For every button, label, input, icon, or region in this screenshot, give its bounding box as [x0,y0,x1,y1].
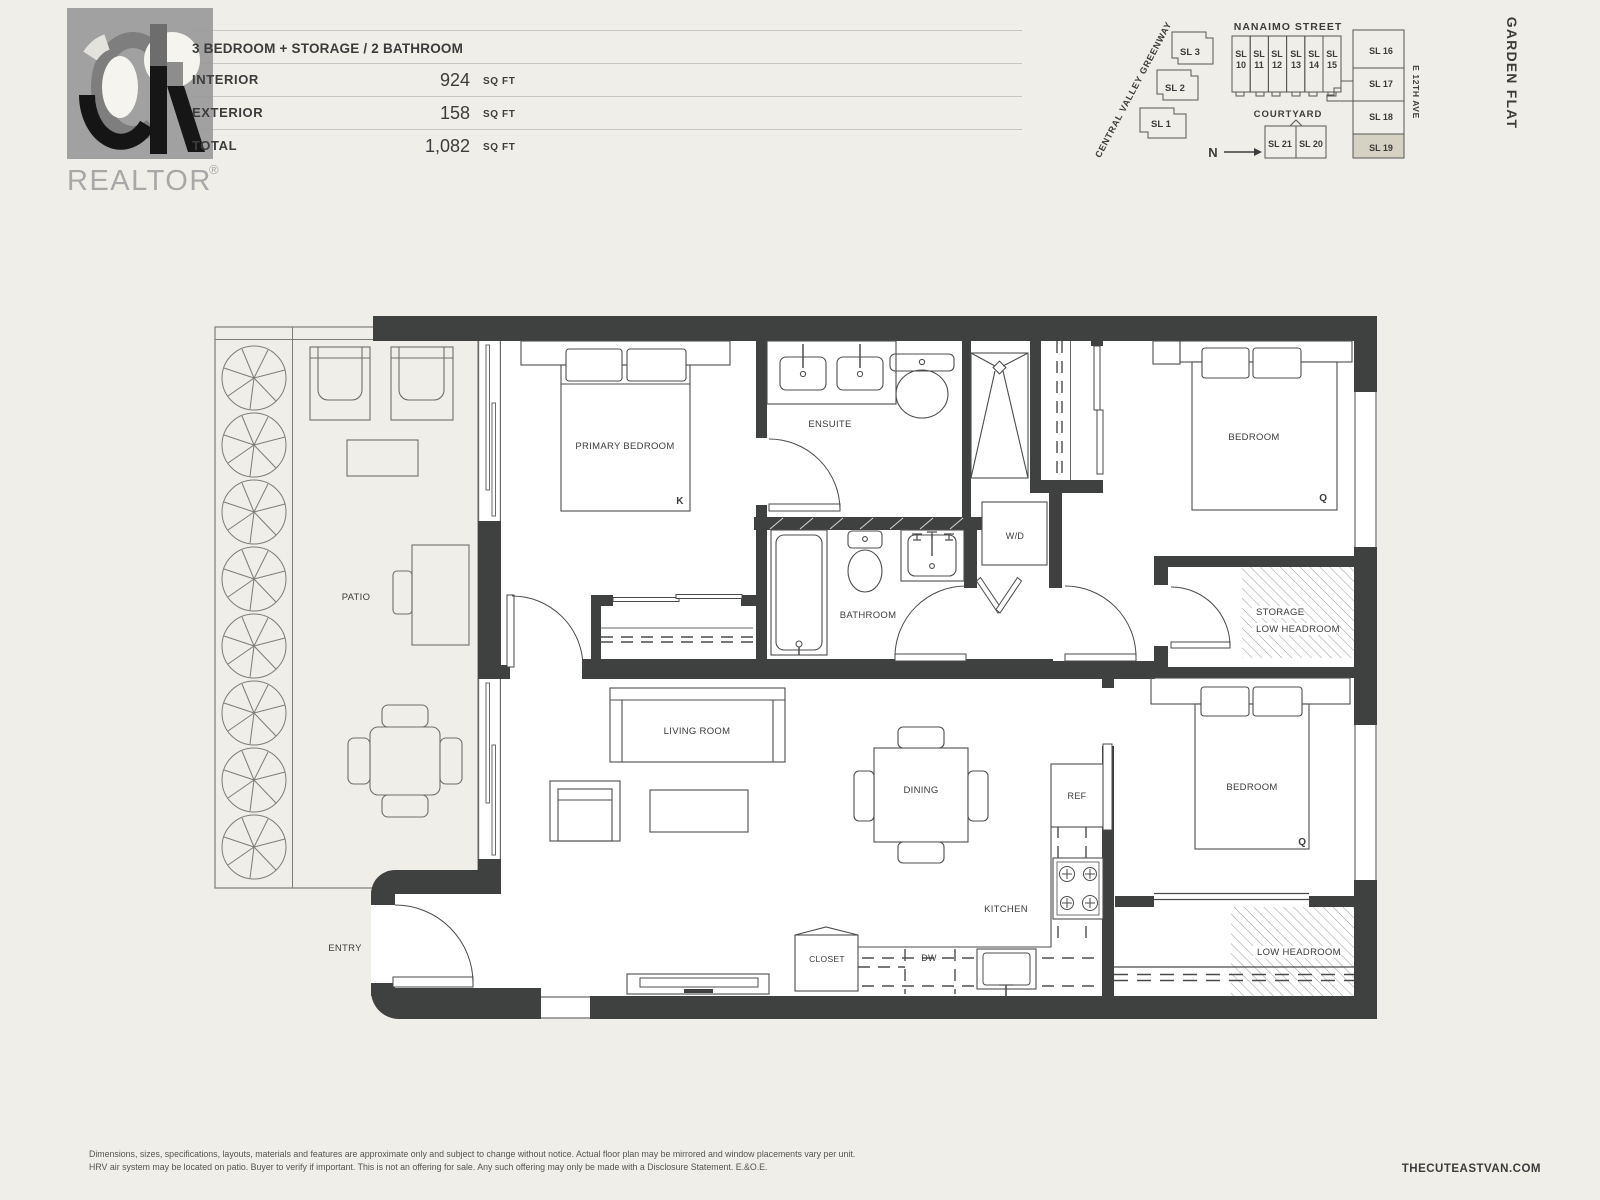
svg-text:REF: REF [1068,791,1087,801]
svg-text:BEDROOM: BEDROOM [1228,432,1279,443]
svg-text:SQ FT: SQ FT [483,76,515,87]
svg-text:TOTAL: TOTAL [192,138,237,153]
svg-text:3 BEDROOM + STORAGE / 2 BATHRO: 3 BEDROOM + STORAGE / 2 BATHROOM [192,41,463,56]
svg-text:ENSUITE: ENSUITE [808,419,851,430]
svg-text:DINING: DINING [903,785,938,796]
svg-text:PATIO: PATIO [342,592,371,603]
svg-text:Q: Q [1319,493,1327,504]
svg-text:CLOSET: CLOSET [809,954,845,964]
svg-text:N: N [1208,145,1217,160]
svg-text:REALTOR: REALTOR [67,165,212,197]
svg-text:SL 2: SL 2 [1165,83,1185,94]
svg-text:K: K [676,496,684,507]
svg-text:SL: SL [1290,49,1302,59]
svg-text:158: 158 [440,103,470,123]
svg-text:1,082: 1,082 [425,136,470,156]
svg-text:E 12TH AVE: E 12TH AVE [1411,65,1421,119]
svg-text:BATHROOM: BATHROOM [840,610,897,621]
svg-text:SL 17: SL 17 [1369,79,1393,89]
svg-text:SL 20: SL 20 [1299,139,1323,149]
svg-text:SL: SL [1326,49,1338,59]
svg-text:SL: SL [1271,49,1283,59]
svg-text:PRIMARY BEDROOM: PRIMARY BEDROOM [575,441,674,452]
svg-text:SL 19: SL 19 [1369,143,1393,153]
svg-text:SL 18: SL 18 [1369,112,1393,122]
svg-text:W/D: W/D [1006,531,1025,541]
svg-text:12: 12 [1272,60,1282,70]
svg-text:LOW HEADROOM: LOW HEADROOM [1257,947,1341,958]
svg-text:Q: Q [1298,837,1306,848]
svg-text:11: 11 [1254,60,1264,70]
svg-text:15: 15 [1327,60,1337,70]
svg-text:HRV air system may be located: HRV air system may be located on patio. … [89,1162,768,1172]
svg-text:SL: SL [1253,49,1265,59]
svg-text:COURTYARD: COURTYARD [1254,109,1323,120]
svg-text:EXTERIOR: EXTERIOR [192,105,263,120]
svg-text:14: 14 [1309,60,1319,70]
svg-text:Dimensions, sizes, specificati: Dimensions, sizes, specifications, layou… [89,1149,855,1159]
svg-text:SL 3: SL 3 [1180,47,1200,58]
svg-text:SQ FT: SQ FT [483,142,515,153]
svg-text:924: 924 [440,70,470,90]
svg-text:INTERIOR: INTERIOR [192,72,259,87]
svg-text:THECUTEASTVAN.COM: THECUTEASTVAN.COM [1402,1163,1541,1175]
svg-text:13: 13 [1291,60,1301,70]
svg-text:SL 21: SL 21 [1268,139,1292,149]
svg-text:SL: SL [1235,49,1247,59]
svg-text:LOW HEADROOM: LOW HEADROOM [1256,624,1340,635]
svg-text:SQ FT: SQ FT [483,109,515,120]
svg-text:SL 1: SL 1 [1151,119,1172,130]
svg-text:KITCHEN: KITCHEN [984,904,1028,915]
svg-text:®: ® [209,162,219,177]
svg-text:10: 10 [1236,60,1246,70]
svg-text:ENTRY: ENTRY [328,943,362,954]
svg-text:NANAIMO STREET: NANAIMO STREET [1234,21,1343,33]
svg-text:STORAGE: STORAGE [1256,607,1304,618]
svg-text:BEDROOM: BEDROOM [1226,782,1277,793]
svg-text:SL: SL [1308,49,1320,59]
svg-text:GARDEN FLAT: GARDEN FLAT [1504,17,1520,130]
svg-text:LIVING ROOM: LIVING ROOM [664,726,731,737]
svg-text:DW: DW [921,953,937,963]
svg-text:SL 16: SL 16 [1369,46,1393,56]
